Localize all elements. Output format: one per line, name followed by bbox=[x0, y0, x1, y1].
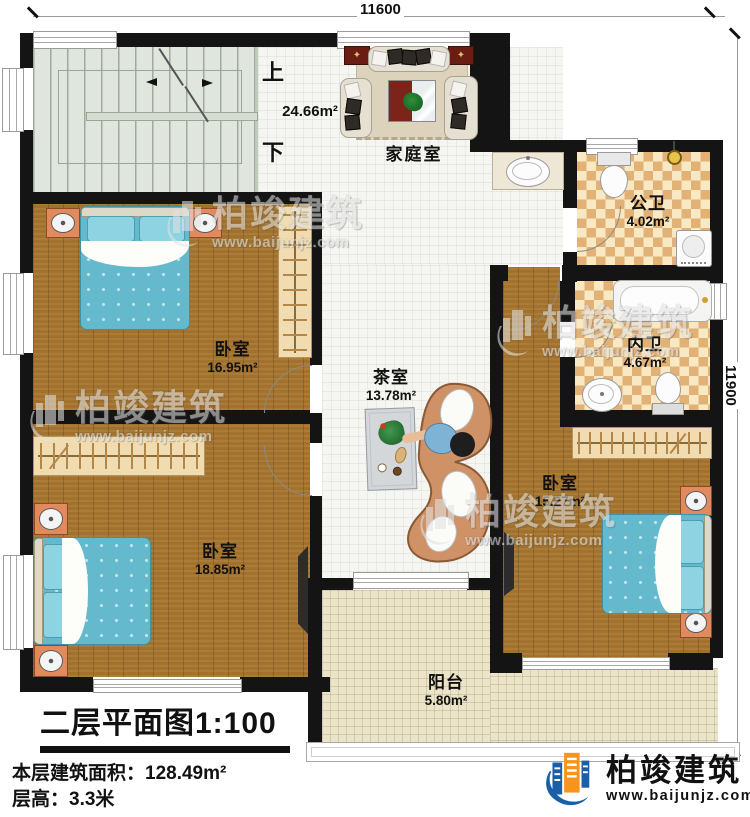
nightstand bbox=[46, 208, 80, 238]
watermark-text: 柏竣建筑 www.baijunjz.com bbox=[212, 196, 364, 251]
toilet bbox=[652, 372, 682, 414]
faucet bbox=[526, 156, 530, 160]
wall-segment bbox=[115, 33, 337, 47]
family-room-label: 家庭室 bbox=[364, 145, 464, 165]
sofa-cushion bbox=[451, 97, 468, 114]
nightstand bbox=[680, 486, 712, 516]
wall-segment bbox=[490, 653, 522, 673]
sofa-cushion bbox=[371, 50, 388, 67]
room-name: 卧室 bbox=[165, 542, 275, 562]
plan-title: 二层平面图1:100 bbox=[40, 698, 277, 742]
stair-down-label: 下 bbox=[255, 140, 291, 165]
wall-segment bbox=[322, 578, 353, 590]
room-area: 16.95m² bbox=[175, 360, 290, 376]
bedroom-left-label: 卧室 16.95m² bbox=[175, 340, 290, 375]
stair-arrow-left bbox=[146, 78, 157, 86]
headboard bbox=[704, 515, 712, 614]
sink bbox=[506, 157, 550, 187]
window bbox=[2, 68, 24, 132]
wall-segment bbox=[240, 677, 330, 692]
washer-drum bbox=[682, 235, 705, 258]
tea-room-label: 茶室 13.78m² bbox=[335, 368, 447, 403]
stair-arrow-right bbox=[202, 79, 213, 87]
washer-controls bbox=[681, 262, 706, 264]
wall-segment bbox=[510, 140, 586, 152]
floor-height-value: 3.3米 bbox=[69, 789, 114, 810]
title-underline bbox=[40, 746, 290, 753]
pendant-light bbox=[667, 150, 682, 165]
hangers bbox=[40, 443, 198, 469]
window bbox=[33, 31, 117, 49]
toilet-bowl bbox=[655, 372, 681, 404]
watermark: 柏竣建筑 www.baijunjz.com bbox=[25, 390, 227, 445]
wall-segment bbox=[308, 578, 322, 742]
wall-segment bbox=[560, 357, 575, 412]
room-name: 茶室 bbox=[335, 368, 447, 388]
room-area: 13.78m² bbox=[335, 388, 447, 404]
floor-area-line: 本层建筑面积：128.49m² bbox=[12, 758, 226, 785]
brand-website: www.baijunjz.com bbox=[606, 788, 750, 804]
watermark-logo-icon bbox=[162, 197, 206, 251]
wall-segment bbox=[20, 33, 33, 68]
room-name: 卧室 bbox=[175, 340, 290, 360]
family-room-area: 24.66m² bbox=[260, 103, 360, 120]
wall-segment bbox=[560, 410, 710, 427]
watermark: 柏竣建筑 www.baijunjz.com bbox=[162, 196, 364, 251]
brand-name: 柏竣建筑 bbox=[606, 754, 750, 788]
bed bbox=[602, 514, 712, 614]
window bbox=[3, 555, 24, 650]
nightstand bbox=[34, 645, 68, 677]
watermark-text: 柏竣建筑 www.baijunjz.com bbox=[465, 494, 617, 549]
nightstand bbox=[34, 503, 68, 535]
wall-segment bbox=[310, 496, 322, 578]
room-area: 4.02m² bbox=[600, 214, 696, 230]
wall-segment bbox=[562, 265, 723, 281]
watermark-logo-icon bbox=[492, 306, 536, 360]
watermark-text: 柏竣建筑 www.baijunjz.com bbox=[75, 390, 227, 445]
wardrobe bbox=[572, 427, 712, 459]
window bbox=[3, 273, 24, 355]
sink-basin bbox=[512, 162, 542, 180]
watermark-url: www.baijunjz.com bbox=[75, 428, 227, 445]
toilet-tank bbox=[597, 152, 631, 166]
balcony-floor bbox=[322, 590, 490, 742]
floor-area-value: 128.49m² bbox=[145, 763, 226, 784]
floor-plan: 11600 11900 bbox=[0, 0, 750, 817]
stair-up-label: 上 bbox=[255, 60, 291, 85]
sliding-door bbox=[522, 657, 670, 670]
washing-machine bbox=[676, 230, 712, 267]
watermark-url: www.baijunjz.com bbox=[542, 343, 694, 360]
toilet bbox=[597, 152, 629, 198]
floor-area-label: 本层建筑面积： bbox=[12, 763, 145, 784]
wall-segment bbox=[467, 578, 490, 590]
brand-logo: 柏竣建筑 www.baijunjz.com bbox=[536, 748, 750, 810]
room-name: 公卫 bbox=[600, 194, 696, 214]
pillow bbox=[87, 216, 135, 242]
watermark: 柏竣建筑 www.baijunjz.com bbox=[415, 494, 617, 549]
faucet bbox=[600, 392, 604, 396]
floor-height-label: 层高： bbox=[12, 789, 69, 810]
watermark-url: www.baijunjz.com bbox=[212, 234, 364, 251]
coffee-table bbox=[388, 80, 436, 122]
balcony-label: 阳台 5.80m² bbox=[390, 673, 502, 708]
wall-segment bbox=[20, 677, 93, 692]
wall-segment bbox=[310, 413, 322, 443]
toilet-tank bbox=[652, 403, 684, 415]
wall-segment bbox=[20, 353, 33, 555]
wall-segment bbox=[668, 653, 713, 670]
watermark-logo-icon bbox=[25, 391, 69, 445]
watermark-url: www.baijunjz.com bbox=[465, 532, 617, 549]
sink bbox=[582, 378, 622, 412]
bathtub-faucet bbox=[702, 297, 708, 303]
side-table: ✦ bbox=[448, 46, 474, 65]
dimension-tick bbox=[729, 27, 741, 39]
tv bbox=[298, 546, 308, 634]
top-dimension-value: 11600 bbox=[357, 1, 404, 18]
vanity-counter bbox=[492, 152, 564, 190]
right-dimension-value: 11900 bbox=[722, 362, 739, 409]
room-name: 阳台 bbox=[390, 673, 502, 693]
sofa-cushion bbox=[450, 113, 466, 129]
window bbox=[93, 679, 242, 693]
balcony-floor bbox=[490, 668, 718, 742]
blanket-fold bbox=[62, 538, 88, 644]
pillow bbox=[678, 520, 704, 564]
pillow bbox=[678, 566, 704, 610]
bedroom-bottom-label: 卧室 18.85m² bbox=[165, 542, 275, 577]
room-area: 18.85m² bbox=[165, 562, 275, 578]
floor-height-line: 层高：3.3米 bbox=[12, 784, 114, 811]
watermark-logo-icon bbox=[415, 495, 459, 549]
side-table: ✦ bbox=[344, 46, 370, 65]
hangers bbox=[578, 432, 706, 454]
public-bathroom-label: 公卫 4.02m² bbox=[600, 194, 696, 229]
brand-logo-icon bbox=[536, 748, 598, 810]
person-head bbox=[450, 432, 475, 457]
watermark-name: 柏竣建筑 bbox=[542, 305, 694, 341]
room-area: 5.80m² bbox=[390, 693, 502, 709]
watermark-text: 柏竣建筑 www.baijunjz.com bbox=[542, 305, 694, 360]
watermark-name: 柏竣建筑 bbox=[465, 494, 617, 530]
brand-text: 柏竣建筑 www.baijunjz.com bbox=[606, 754, 750, 804]
wall-segment bbox=[563, 152, 577, 208]
blanket-fold bbox=[655, 515, 681, 613]
headboard bbox=[34, 538, 43, 645]
wall-segment bbox=[490, 265, 508, 281]
watermark-name: 柏竣建筑 bbox=[75, 390, 227, 426]
watermark: 柏竣建筑 www.baijunjz.com bbox=[492, 305, 694, 360]
sofa-cushion bbox=[430, 50, 448, 68]
stair-landing-rail bbox=[86, 112, 258, 121]
watermark-name: 柏竣建筑 bbox=[212, 196, 364, 232]
bed bbox=[33, 537, 151, 645]
